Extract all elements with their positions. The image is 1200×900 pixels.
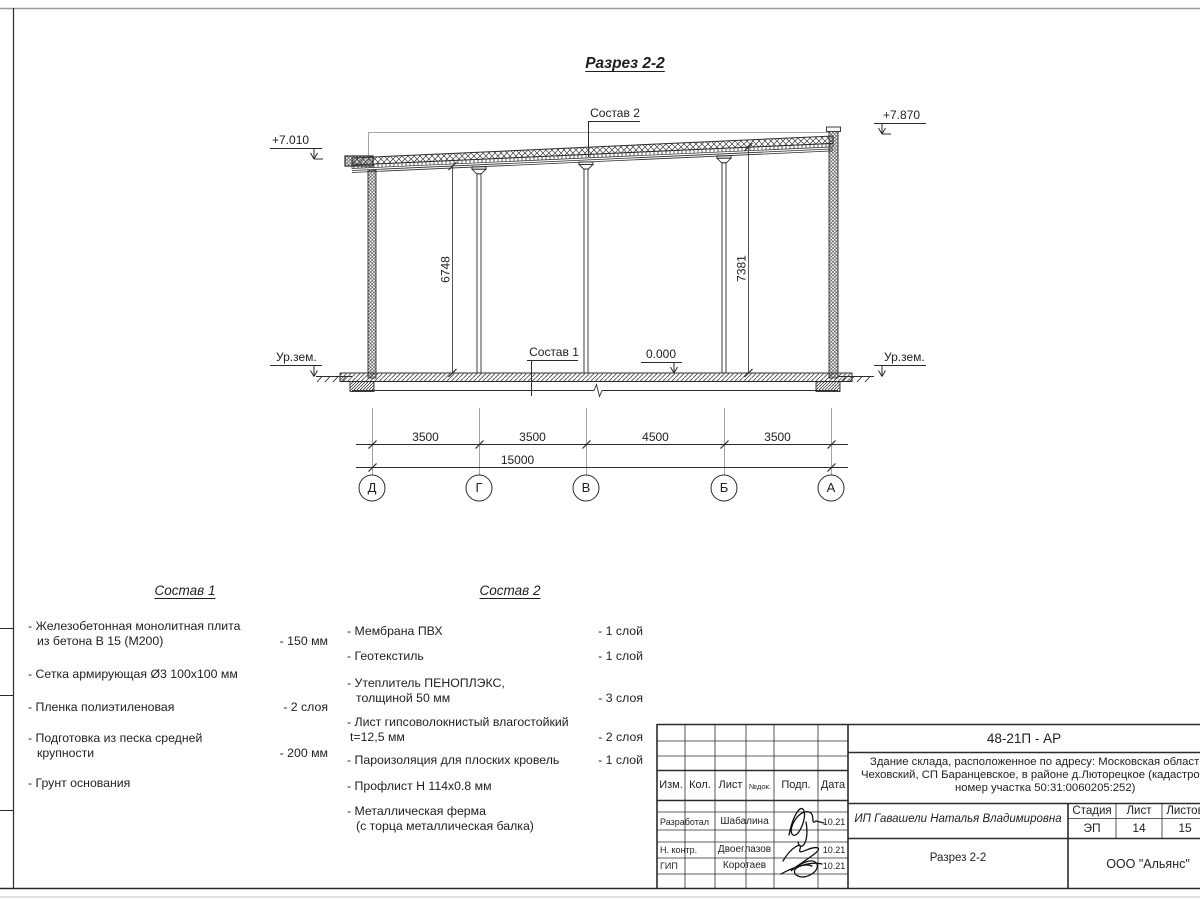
dim-span-2: 3500 [502, 431, 563, 444]
titleblock-col-list: Лист [715, 779, 746, 791]
list-item: - Металлическая ферма(с торца металличес… [347, 804, 643, 833]
dim-span-4: 3500 [747, 431, 808, 444]
titleblock-role: ГИП [660, 861, 678, 871]
dimension-chain [356, 408, 848, 501]
drawing-sheet: Разрез 2-2 +7.010 +7.870 0.000 Ур.зем. У… [0, 0, 1200, 900]
axis-bubble-label: А [821, 481, 841, 495]
sheets-label: Листов [1162, 805, 1200, 817]
list-item: - Геотекстиль - 1 слой [347, 649, 643, 664]
project-description-line1: Здание склада, расположенное по адресу: … [870, 756, 1200, 768]
titleblock-col-izm: Изм. [657, 779, 685, 791]
titleblock-date: 10.21 [820, 845, 848, 855]
project-description-line3: номер участка 50:31:0060205:252) [955, 782, 1135, 794]
elevation-zero-label: 0.000 [640, 348, 682, 361]
titleblock-name: Двоеглазов [715, 844, 774, 855]
elevation-left-label: +7.010 [272, 134, 309, 147]
axis-bubble-label: В [576, 481, 596, 495]
columns [472, 156, 731, 373]
vertical-dim-left: 6748 [440, 250, 453, 290]
stage-label: Стадия [1068, 805, 1116, 817]
titleblock-name: Коротаев [715, 860, 774, 871]
company-name: ООО "Альянс" [1068, 857, 1200, 871]
list-item: - Утеплитель ПЕНОПЛЭКС,толщиной 50 мм - … [347, 676, 643, 705]
titleblock-col-kol: Кол. [685, 779, 715, 791]
project-code: 48-21П - АР [848, 731, 1200, 746]
vertical-dimensions [449, 143, 753, 377]
sheet-number: 14 [1116, 821, 1162, 835]
elevation-right-label: +7.870 [883, 109, 920, 122]
titleblock-col-data: Дата [818, 779, 848, 791]
stage-value: ЭП [1068, 821, 1116, 835]
sostav2-title: Состав 2 [445, 583, 575, 598]
titleblock-date: 10.21 [820, 817, 848, 827]
dim-span-1: 3500 [395, 431, 456, 444]
axis-bubble-label: Д [362, 481, 382, 495]
list-item: - Мембрана ПВХ - 1 слой [347, 624, 643, 639]
left-wall [368, 170, 376, 378]
dim-total: 15000 [487, 454, 548, 467]
dim-span-3: 4500 [625, 431, 686, 444]
axis-bubble-label: Б [714, 481, 734, 495]
list-item: - Грунт основания [28, 776, 328, 791]
titleblock-role: Н. контр. [660, 845, 697, 855]
titleblock-role: Разработал [660, 817, 709, 827]
vertical-dim-right: 7381 [736, 249, 749, 289]
list-item: - Железобетонная монолитная плитаиз бето… [28, 619, 328, 648]
leader-sostav1-label: Состав 1 [527, 346, 581, 359]
list-item: - Сетка армирующая Ø3 100х100 мм [28, 667, 328, 682]
titleblock-name: Шабалина [715, 816, 774, 827]
list-item: - Профлист Н 114х0.8 мм [347, 779, 643, 794]
floor-slab [340, 373, 852, 397]
sheets-total: 15 [1162, 821, 1200, 835]
list-item: - Пленка полиэтиленовая - 2 слоя [28, 700, 328, 715]
list-item: - Лист гипсоволокнистый влагостойкийt=12… [347, 715, 643, 744]
sheet-label: Лист [1116, 805, 1162, 817]
axis-bubble-label: Г [469, 481, 489, 495]
leader-sostav2-label: Состав 2 [588, 107, 642, 120]
sostav1-title: Состав 1 [120, 583, 250, 598]
signature-marks [781, 808, 824, 876]
right-wall [827, 127, 841, 378]
client-name: ИП Гавашели Наталья Владимировна [848, 813, 1068, 825]
titleblock-date: 10.21 [820, 861, 848, 871]
axis-bubbles [359, 475, 844, 501]
titleblock-col-ndok: №док. [746, 782, 774, 791]
titleblock-col-podp: Подп. [774, 779, 818, 791]
project-description-line2: Чеховский, СП Баранцевское, в районе д.Л… [861, 769, 1200, 781]
list-item: - Подготовка из песка среднейкрупности -… [28, 731, 328, 760]
drawing-title: Разрез 2-2 [557, 55, 693, 73]
ground-level-right-label: Ур.зем. [884, 351, 925, 364]
ground-level-left-label: Ур.зем. [276, 351, 317, 364]
sheet-title: Разрез 2-2 [848, 852, 1068, 864]
list-item: - Пароизоляция для плоских кровель - 1 с… [347, 753, 643, 768]
